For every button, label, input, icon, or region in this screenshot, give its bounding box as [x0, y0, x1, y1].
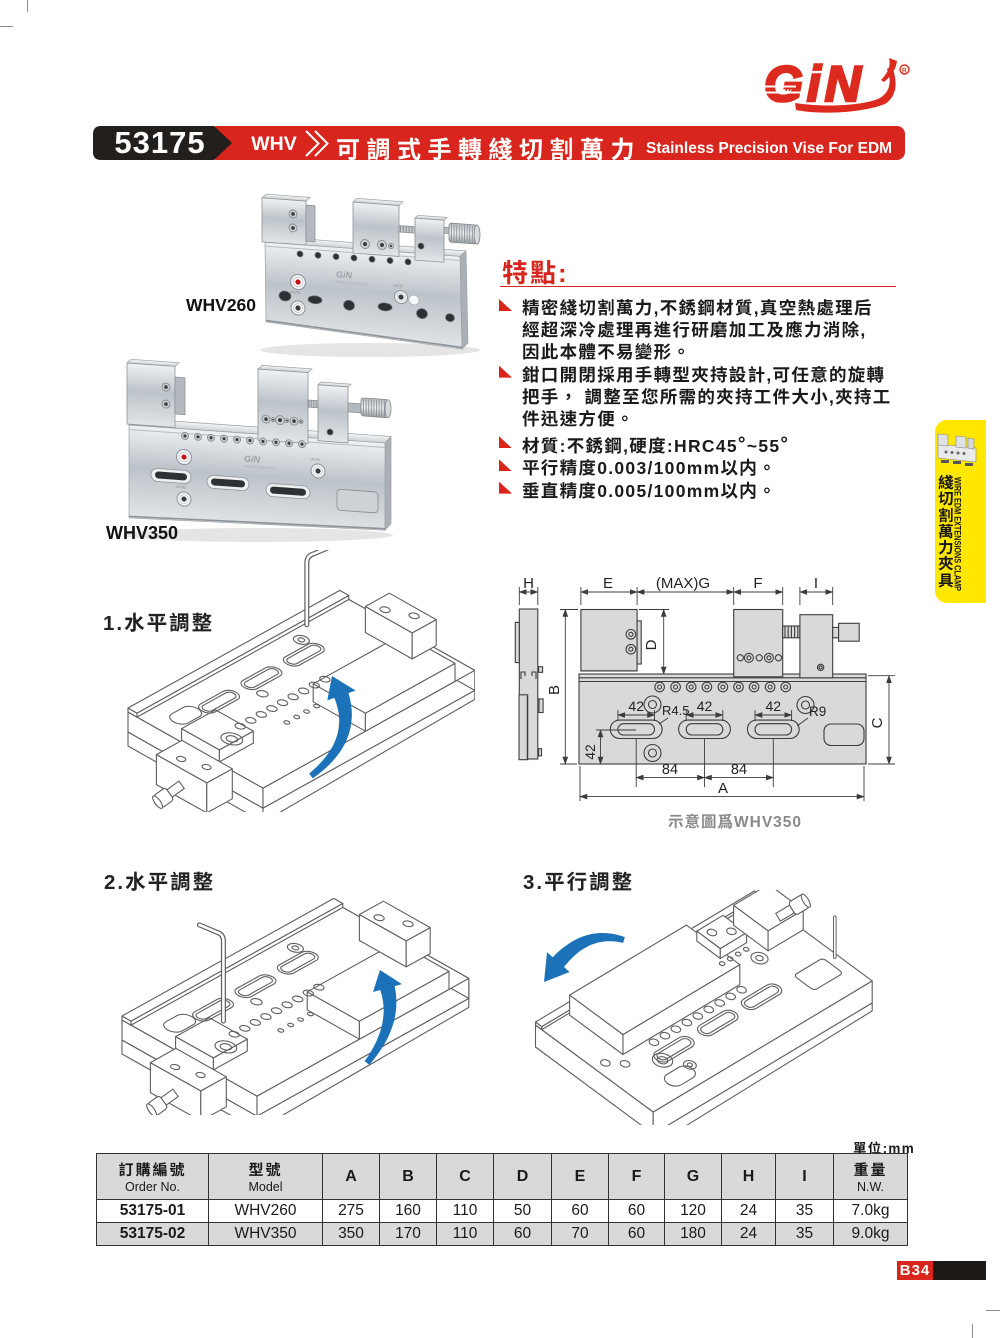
svg-text:42: 42: [766, 698, 782, 714]
svg-text:(MAX)G: (MAX)G: [656, 575, 710, 592]
svg-text:E: E: [603, 575, 613, 592]
svg-text:42: 42: [582, 744, 598, 760]
svg-text:A: A: [718, 780, 728, 797]
svg-text:B: B: [546, 685, 563, 695]
svg-text:R9: R9: [809, 704, 826, 719]
svg-text:LEVEL: LEVEL: [393, 284, 404, 289]
svg-text:D: D: [643, 639, 660, 650]
svg-text:WIRE EDM EXTENSIONS CLAMP: WIRE EDM EXTENSIONS CLAMP: [952, 477, 963, 592]
svg-text:LEVEL: LEVEL: [176, 485, 187, 490]
svg-text:C: C: [869, 717, 886, 728]
svg-text:LEVEL: LEVEL: [310, 457, 321, 462]
svg-text:42: 42: [628, 698, 644, 714]
svg-text:H: H: [523, 575, 534, 592]
svg-text:GiN: GiN: [764, 56, 865, 112]
svg-text:R: R: [902, 68, 907, 75]
svg-text:42: 42: [697, 698, 713, 714]
svg-text:LEVEL: LEVEL: [290, 290, 301, 295]
svg-text:I: I: [814, 575, 818, 592]
svg-text:R4.5: R4.5: [662, 703, 689, 718]
svg-text:84: 84: [662, 762, 678, 778]
svg-text:F: F: [753, 575, 762, 592]
svg-text:84: 84: [731, 762, 747, 778]
